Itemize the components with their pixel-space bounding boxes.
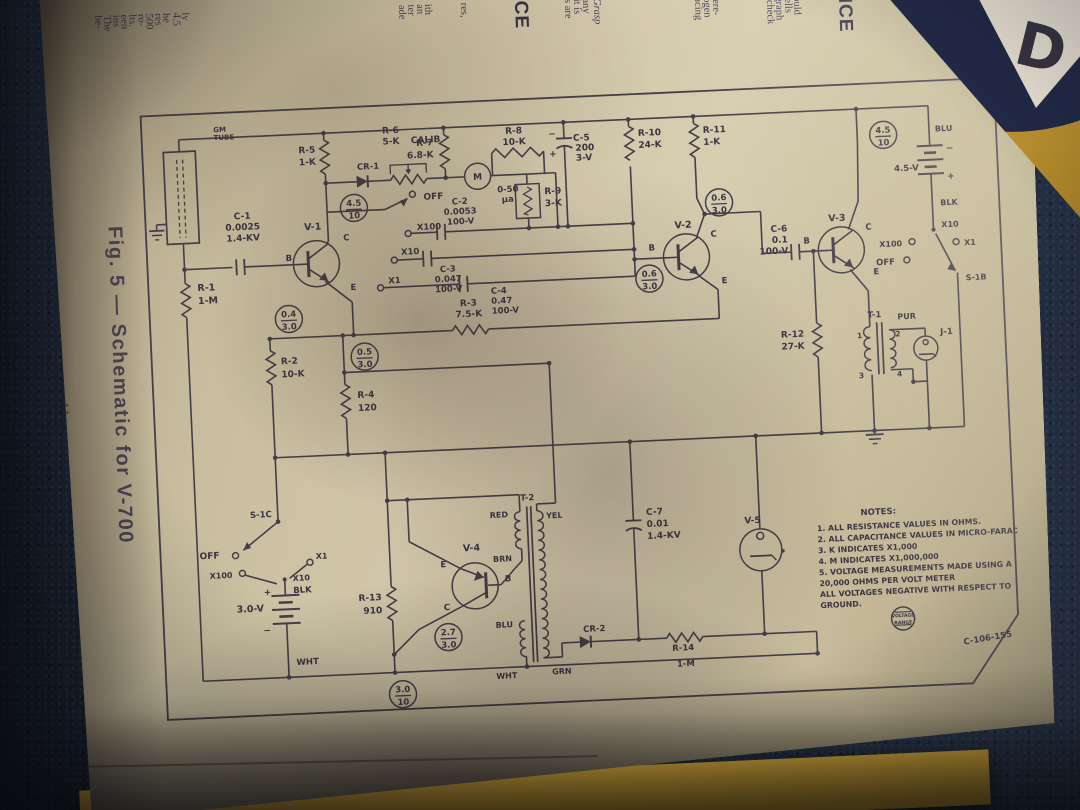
photo-scene: be-Theinseenlts.ro-500reshe4.5lyadeteran…: [0, 0, 1080, 810]
svg-text:X100: X100: [209, 571, 233, 581]
svg-text:3.0: 3.0: [357, 360, 373, 371]
page-text-fragment: ith: [422, 4, 433, 15]
svg-text:S-1C: S-1C: [250, 510, 272, 521]
svg-text:R-11: R-11: [703, 125, 727, 136]
svg-text:T-1: T-1: [867, 310, 882, 321]
svg-text:4.5: 4.5: [875, 126, 891, 137]
svg-text:100-V: 100-V: [759, 246, 788, 257]
svg-text:120: 120: [358, 403, 377, 414]
svg-text:3.0-V: 3.0-V: [236, 603, 265, 615]
svg-text:E: E: [440, 560, 446, 570]
schematic-svg: 4.5104.5100.43.00.53.00.63.00.63.02.73.0…: [137, 75, 1024, 729]
svg-text:4: 4: [897, 369, 903, 378]
svg-text:6.8-K: 6.8-K: [407, 150, 435, 161]
svg-text:−: −: [946, 144, 954, 154]
svg-text:1-M: 1-M: [198, 295, 218, 307]
svg-text:1-K: 1-K: [299, 158, 317, 169]
svg-text:R-6: R-6: [382, 126, 399, 137]
svg-text:V-2: V-2: [674, 220, 692, 232]
svg-text:X10: X10: [941, 220, 959, 230]
svg-text:X1: X1: [964, 238, 977, 248]
svg-text:VOLTAGE: VOLTAGE: [891, 612, 914, 619]
svg-text:BLU: BLU: [935, 124, 953, 134]
svg-text:R-8: R-8: [505, 126, 522, 137]
svg-text:3.0: 3.0: [282, 322, 298, 333]
svg-text:1.4-KV: 1.4-KV: [647, 530, 681, 542]
svg-text:R-5: R-5: [298, 146, 315, 157]
svg-text:R-7: R-7: [416, 138, 433, 149]
page-text-fragment: here-: [710, 0, 722, 16]
svg-text:R-9: R-9: [544, 187, 561, 198]
svg-text:X1: X1: [315, 551, 328, 561]
svg-text:B: B: [285, 254, 292, 264]
svg-text:0-50: 0-50: [497, 184, 519, 195]
page-text-fragment: any: [580, 0, 592, 14]
svg-text:3.0: 3.0: [712, 206, 728, 217]
svg-text:3: 3: [859, 371, 865, 380]
svg-text:X1: X1: [388, 276, 401, 287]
svg-text:X100: X100: [879, 239, 903, 249]
svg-text:C-1: C-1: [234, 212, 251, 223]
svg-text:10: 10: [397, 697, 409, 708]
svg-text:C-6: C-6: [770, 224, 787, 235]
svg-text:10: 10: [877, 138, 889, 149]
svg-text:CR-1: CR-1: [357, 162, 380, 173]
svg-text:+: +: [947, 172, 955, 182]
svg-text:0.0025: 0.0025: [225, 222, 260, 234]
svg-text:V-4: V-4: [463, 543, 481, 555]
svg-text:GRN: GRN: [552, 667, 572, 677]
svg-text:NOTES:: NOTES:: [860, 507, 896, 519]
svg-text:BLK: BLK: [940, 198, 959, 208]
svg-text:E: E: [873, 267, 879, 277]
svg-text:C: C: [865, 222, 872, 232]
svg-text:R-2: R-2: [281, 357, 298, 368]
svg-text:R-14: R-14: [672, 643, 694, 654]
svg-text:3-K: 3-K: [545, 198, 563, 209]
svg-text:CR-2: CR-2: [583, 624, 606, 635]
svg-text:BLK: BLK: [293, 585, 312, 596]
svg-text:C: C: [710, 230, 717, 240]
svg-text:0.01: 0.01: [646, 519, 669, 530]
svg-text:10-K: 10-K: [502, 137, 527, 148]
svg-text:10: 10: [348, 211, 360, 222]
svg-text:100-V: 100-V: [447, 216, 475, 227]
svg-text:5-K: 5-K: [382, 137, 400, 148]
book-page: be-Theinseenlts.ro-500reshe4.5lyadeteran…: [37, 0, 1056, 810]
svg-text:−: −: [548, 130, 556, 140]
svg-text:M: M: [473, 173, 482, 183]
svg-text:27-K: 27-K: [781, 342, 806, 353]
svg-text:2: 2: [895, 329, 901, 338]
svg-text:4.5-V: 4.5-V: [894, 163, 919, 174]
svg-text:100-V: 100-V: [435, 284, 463, 295]
svg-text:R-4: R-4: [357, 390, 374, 401]
svg-text:YEL: YEL: [545, 511, 563, 521]
svg-text:+: +: [549, 150, 557, 160]
svg-text:OFF: OFF: [423, 192, 443, 203]
svg-text:10-K: 10-K: [281, 369, 306, 380]
svg-text:WHT: WHT: [496, 671, 518, 681]
svg-text:0.6: 0.6: [711, 193, 727, 204]
svg-text:0.5: 0.5: [357, 347, 373, 358]
svg-text:PUR: PUR: [897, 312, 916, 322]
svg-text:910: 910: [363, 606, 382, 617]
svg-text:µa: µa: [502, 195, 515, 206]
svg-text:X100: X100: [417, 222, 442, 233]
svg-text:C: C: [444, 603, 451, 613]
svg-text:BRN: BRN: [493, 554, 512, 564]
svg-text:1: 1: [857, 331, 863, 340]
svg-text:J-1: J-1: [939, 327, 953, 338]
svg-text:24-K: 24-K: [638, 140, 663, 151]
svg-text:B: B: [803, 236, 810, 246]
svg-text:X10: X10: [401, 247, 420, 258]
svg-text:V-1: V-1: [304, 221, 322, 233]
svg-text:E: E: [350, 283, 356, 293]
svg-text:S-1B: S-1B: [966, 272, 987, 282]
svg-text:OFF: OFF: [199, 551, 219, 562]
page-text-fragment: NCE: [833, 0, 856, 33]
svg-text:R-13: R-13: [358, 593, 382, 604]
svg-text:R-3: R-3: [460, 298, 477, 309]
svg-text:3.0: 3.0: [441, 640, 457, 651]
svg-text:100-V: 100-V: [492, 306, 520, 317]
svg-text:1.4-KV: 1.4-KV: [226, 233, 260, 245]
svg-text:R-12: R-12: [781, 330, 805, 341]
page-text-fragment: CE: [509, 0, 532, 29]
figure-caption: Fig. 5 — Schematic for V-700: [103, 226, 137, 545]
svg-text:C: C: [343, 233, 350, 243]
page-text-fragment: hould: [791, 0, 803, 15]
svg-text:RANGE: RANGE: [894, 620, 912, 627]
page-text-fragment: res,: [458, 2, 470, 17]
page-text-fragment: Grasp: [591, 0, 603, 24]
svg-text:2.7: 2.7: [441, 628, 457, 639]
svg-text:T-2: T-2: [520, 493, 535, 504]
svg-text:4.5: 4.5: [346, 199, 362, 210]
svg-text:3.0: 3.0: [395, 685, 411, 696]
svg-text:0.1: 0.1: [772, 235, 788, 246]
svg-text:OFF: OFF: [876, 257, 895, 268]
svg-text:B: B: [505, 574, 512, 584]
svg-text:−: −: [263, 626, 271, 636]
svg-text:E: E: [721, 276, 727, 286]
svg-text:7.5-K: 7.5-K: [455, 309, 483, 320]
svg-text:X10: X10: [292, 573, 310, 583]
svg-text:WHT: WHT: [296, 657, 319, 668]
under-page-edge: [77, 755, 597, 768]
svg-text:BLU: BLU: [495, 620, 513, 630]
svg-text:V-5: V-5: [744, 516, 761, 527]
svg-text:R-1: R-1: [197, 282, 215, 294]
svg-text:B: B: [648, 243, 655, 253]
svg-text:1-M: 1-M: [677, 659, 695, 670]
svg-text:0.4: 0.4: [281, 310, 297, 321]
svg-text:C-7: C-7: [646, 507, 663, 518]
svg-text:V-3: V-3: [828, 213, 846, 225]
svg-text:RED: RED: [490, 510, 509, 520]
svg-text:GROUND.: GROUND.: [820, 599, 862, 610]
schematic-panel: 4.5104.5100.43.00.53.00.63.00.63.02.73.0…: [137, 75, 1024, 729]
svg-text:3.0: 3.0: [642, 282, 658, 293]
svg-text:C-106-155: C-106-155: [963, 630, 1013, 648]
svg-text:R-10: R-10: [638, 128, 662, 139]
svg-text:TUBE: TUBE: [213, 133, 234, 142]
svg-text:1-K: 1-K: [703, 137, 721, 148]
svg-text:+: +: [264, 588, 272, 598]
page-text-fragment: ly: [179, 12, 190, 21]
svg-text:3-V: 3-V: [576, 153, 593, 164]
svg-text:0.6: 0.6: [642, 269, 658, 280]
